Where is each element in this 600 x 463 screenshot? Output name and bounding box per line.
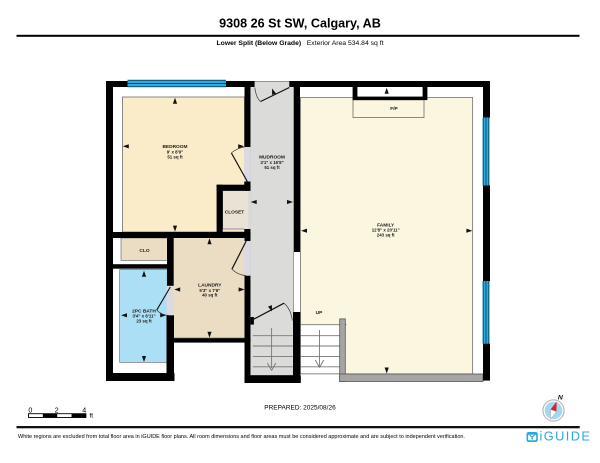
svg-text:UP: UP bbox=[316, 310, 323, 316]
svg-text:51 sq ft: 51 sq ft bbox=[167, 154, 183, 159]
svg-text:51 sq ft: 51 sq ft bbox=[264, 165, 280, 170]
svg-text:CLOSET: CLOSET bbox=[225, 210, 245, 216]
svg-text:Lower Split (Below Grade) Ex: Lower Split (Below Grade) Exterior Area … bbox=[217, 40, 384, 47]
svg-text:F/P: F/P bbox=[390, 106, 398, 112]
svg-text:PREPARED: 2025/08/26: PREPARED: 2025/08/26 bbox=[264, 405, 336, 412]
svg-text:ft: ft bbox=[90, 412, 94, 419]
svg-text:iGUIDE: iGUIDE bbox=[540, 429, 592, 444]
svg-text:CLO: CLO bbox=[139, 248, 149, 254]
svg-text:White regions are excluded fro: White regions are excluded from total fl… bbox=[18, 434, 465, 440]
svg-text:4: 4 bbox=[82, 405, 86, 414]
svg-text:23 sq ft: 23 sq ft bbox=[136, 319, 152, 324]
svg-text:0: 0 bbox=[28, 405, 32, 414]
svg-text:243 sq ft: 243 sq ft bbox=[377, 232, 395, 237]
svg-text:40 sq ft: 40 sq ft bbox=[202, 293, 218, 298]
svg-text:9308 26 St SW, Calgary, AB: 9308 26 St SW, Calgary, AB bbox=[219, 17, 381, 31]
svg-text:2: 2 bbox=[55, 405, 59, 414]
